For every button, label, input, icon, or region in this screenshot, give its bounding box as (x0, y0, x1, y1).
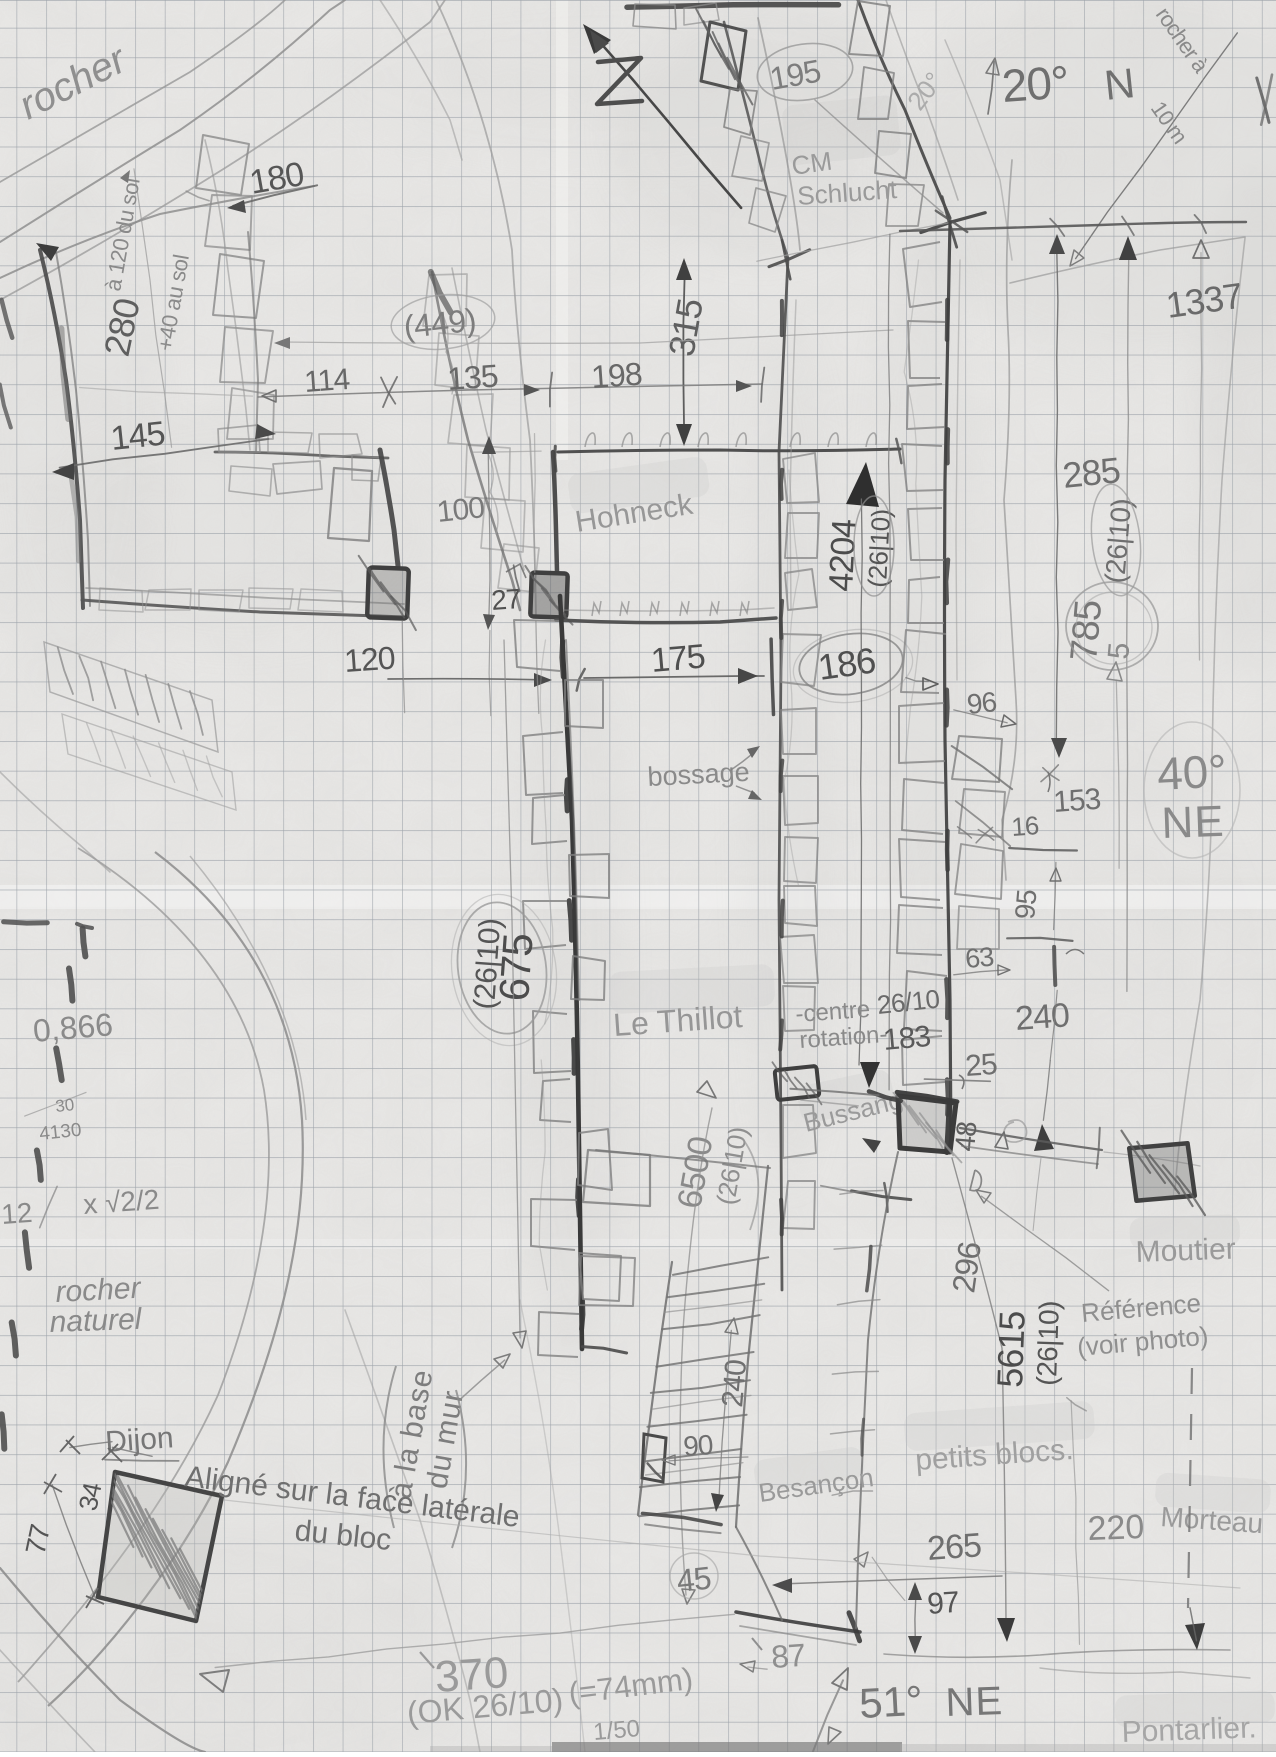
svg-text:(449): (449) (402, 302, 478, 345)
svg-text:135: 135 (446, 358, 499, 397)
svg-text:186: 186 (815, 639, 877, 688)
svg-text:5615: 5615 (989, 1311, 1033, 1388)
svg-text:(26|10): (26|10) (1031, 1300, 1065, 1386)
svg-text:naturel: naturel (49, 1303, 143, 1339)
svg-text:0,866: 0,866 (31, 1006, 114, 1049)
svg-text:(26|10): (26|10) (468, 917, 507, 1010)
svg-text:x √2/2: x √2/2 (82, 1184, 160, 1220)
svg-text:4130: 4130 (38, 1120, 82, 1145)
svg-text:100: 100 (435, 491, 486, 529)
svg-text:27: 27 (490, 583, 522, 616)
svg-text:120: 120 (343, 640, 396, 679)
svg-text:96: 96 (965, 686, 998, 720)
svg-text:63: 63 (964, 942, 995, 974)
svg-text:Moutier: Moutier (1135, 1233, 1236, 1269)
svg-text:114: 114 (303, 363, 350, 399)
svg-text:90: 90 (682, 1429, 714, 1462)
svg-text:183: 183 (882, 1020, 932, 1057)
svg-text:145: 145 (109, 415, 166, 458)
svg-text:285: 285 (1061, 449, 1122, 496)
svg-text:240: 240 (716, 1359, 753, 1409)
svg-text:265: 265 (926, 1526, 982, 1568)
svg-text:12: 12 (0, 1197, 33, 1230)
svg-text:198: 198 (590, 356, 643, 395)
svg-text:1/50: 1/50 (592, 1715, 641, 1746)
svg-text:25: 25 (964, 1048, 998, 1083)
svg-text:CM: CM (790, 146, 834, 181)
svg-text:NE: NE (1161, 797, 1226, 848)
svg-text:51°: 51° (858, 1677, 924, 1727)
svg-text:Pontarlier.: Pontarlier. (1121, 1711, 1257, 1749)
svg-text:97: 97 (926, 1586, 960, 1621)
svg-text:240: 240 (1014, 996, 1070, 1038)
svg-text:16: 16 (1010, 810, 1039, 842)
svg-text:220: 220 (1087, 1508, 1145, 1548)
svg-text:87: 87 (770, 1637, 806, 1675)
svg-text:20°: 20° (1000, 55, 1070, 112)
svg-text:30: 30 (54, 1095, 75, 1116)
svg-text:bossage: bossage (647, 757, 751, 792)
svg-text:175: 175 (649, 637, 706, 680)
svg-text:45: 45 (675, 1560, 712, 1599)
svg-text:95: 95 (1009, 888, 1042, 920)
svg-text:153: 153 (1052, 783, 1102, 819)
svg-text:NE: NE (945, 1679, 1004, 1725)
svg-text:40°: 40° (1156, 744, 1228, 800)
svg-text:4204: 4204 (822, 519, 864, 593)
svg-text:5: 5 (1102, 642, 1136, 661)
svg-text:N: N (1102, 59, 1136, 109)
